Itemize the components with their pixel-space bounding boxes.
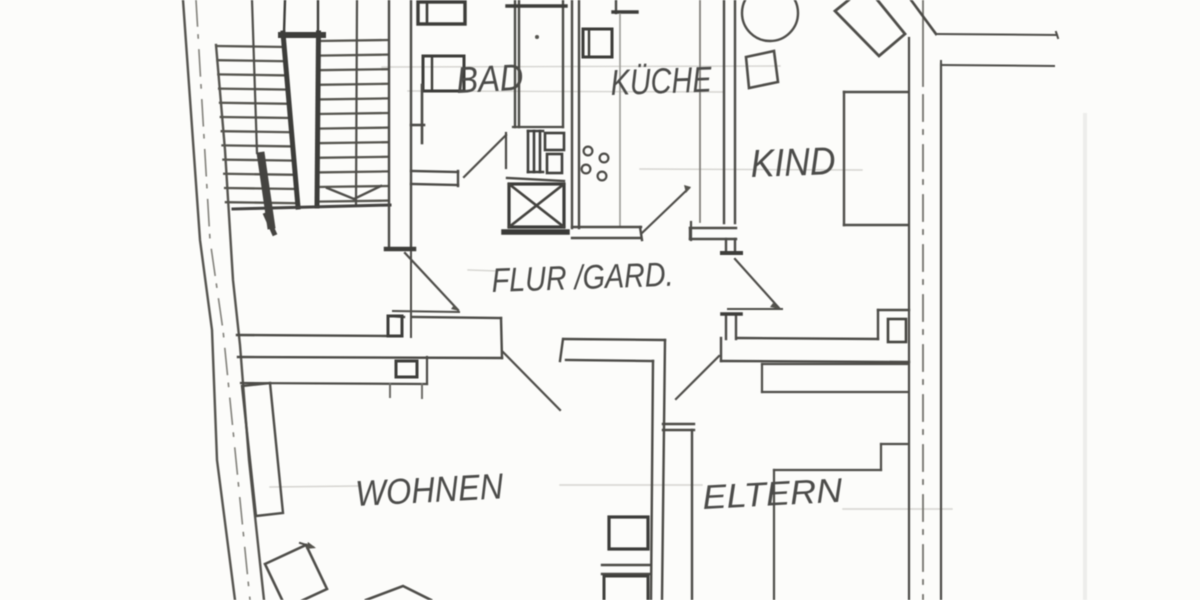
svg-text:ELTERN: ELTERN: [701, 472, 843, 517]
svg-text:FLUR /GARD.: FLUR /GARD.: [491, 256, 674, 300]
svg-text:KÜCHE: KÜCHE: [610, 58, 713, 103]
svg-text:WOHNEN: WOHNEN: [354, 465, 505, 514]
svg-text:KIND: KIND: [750, 140, 836, 186]
